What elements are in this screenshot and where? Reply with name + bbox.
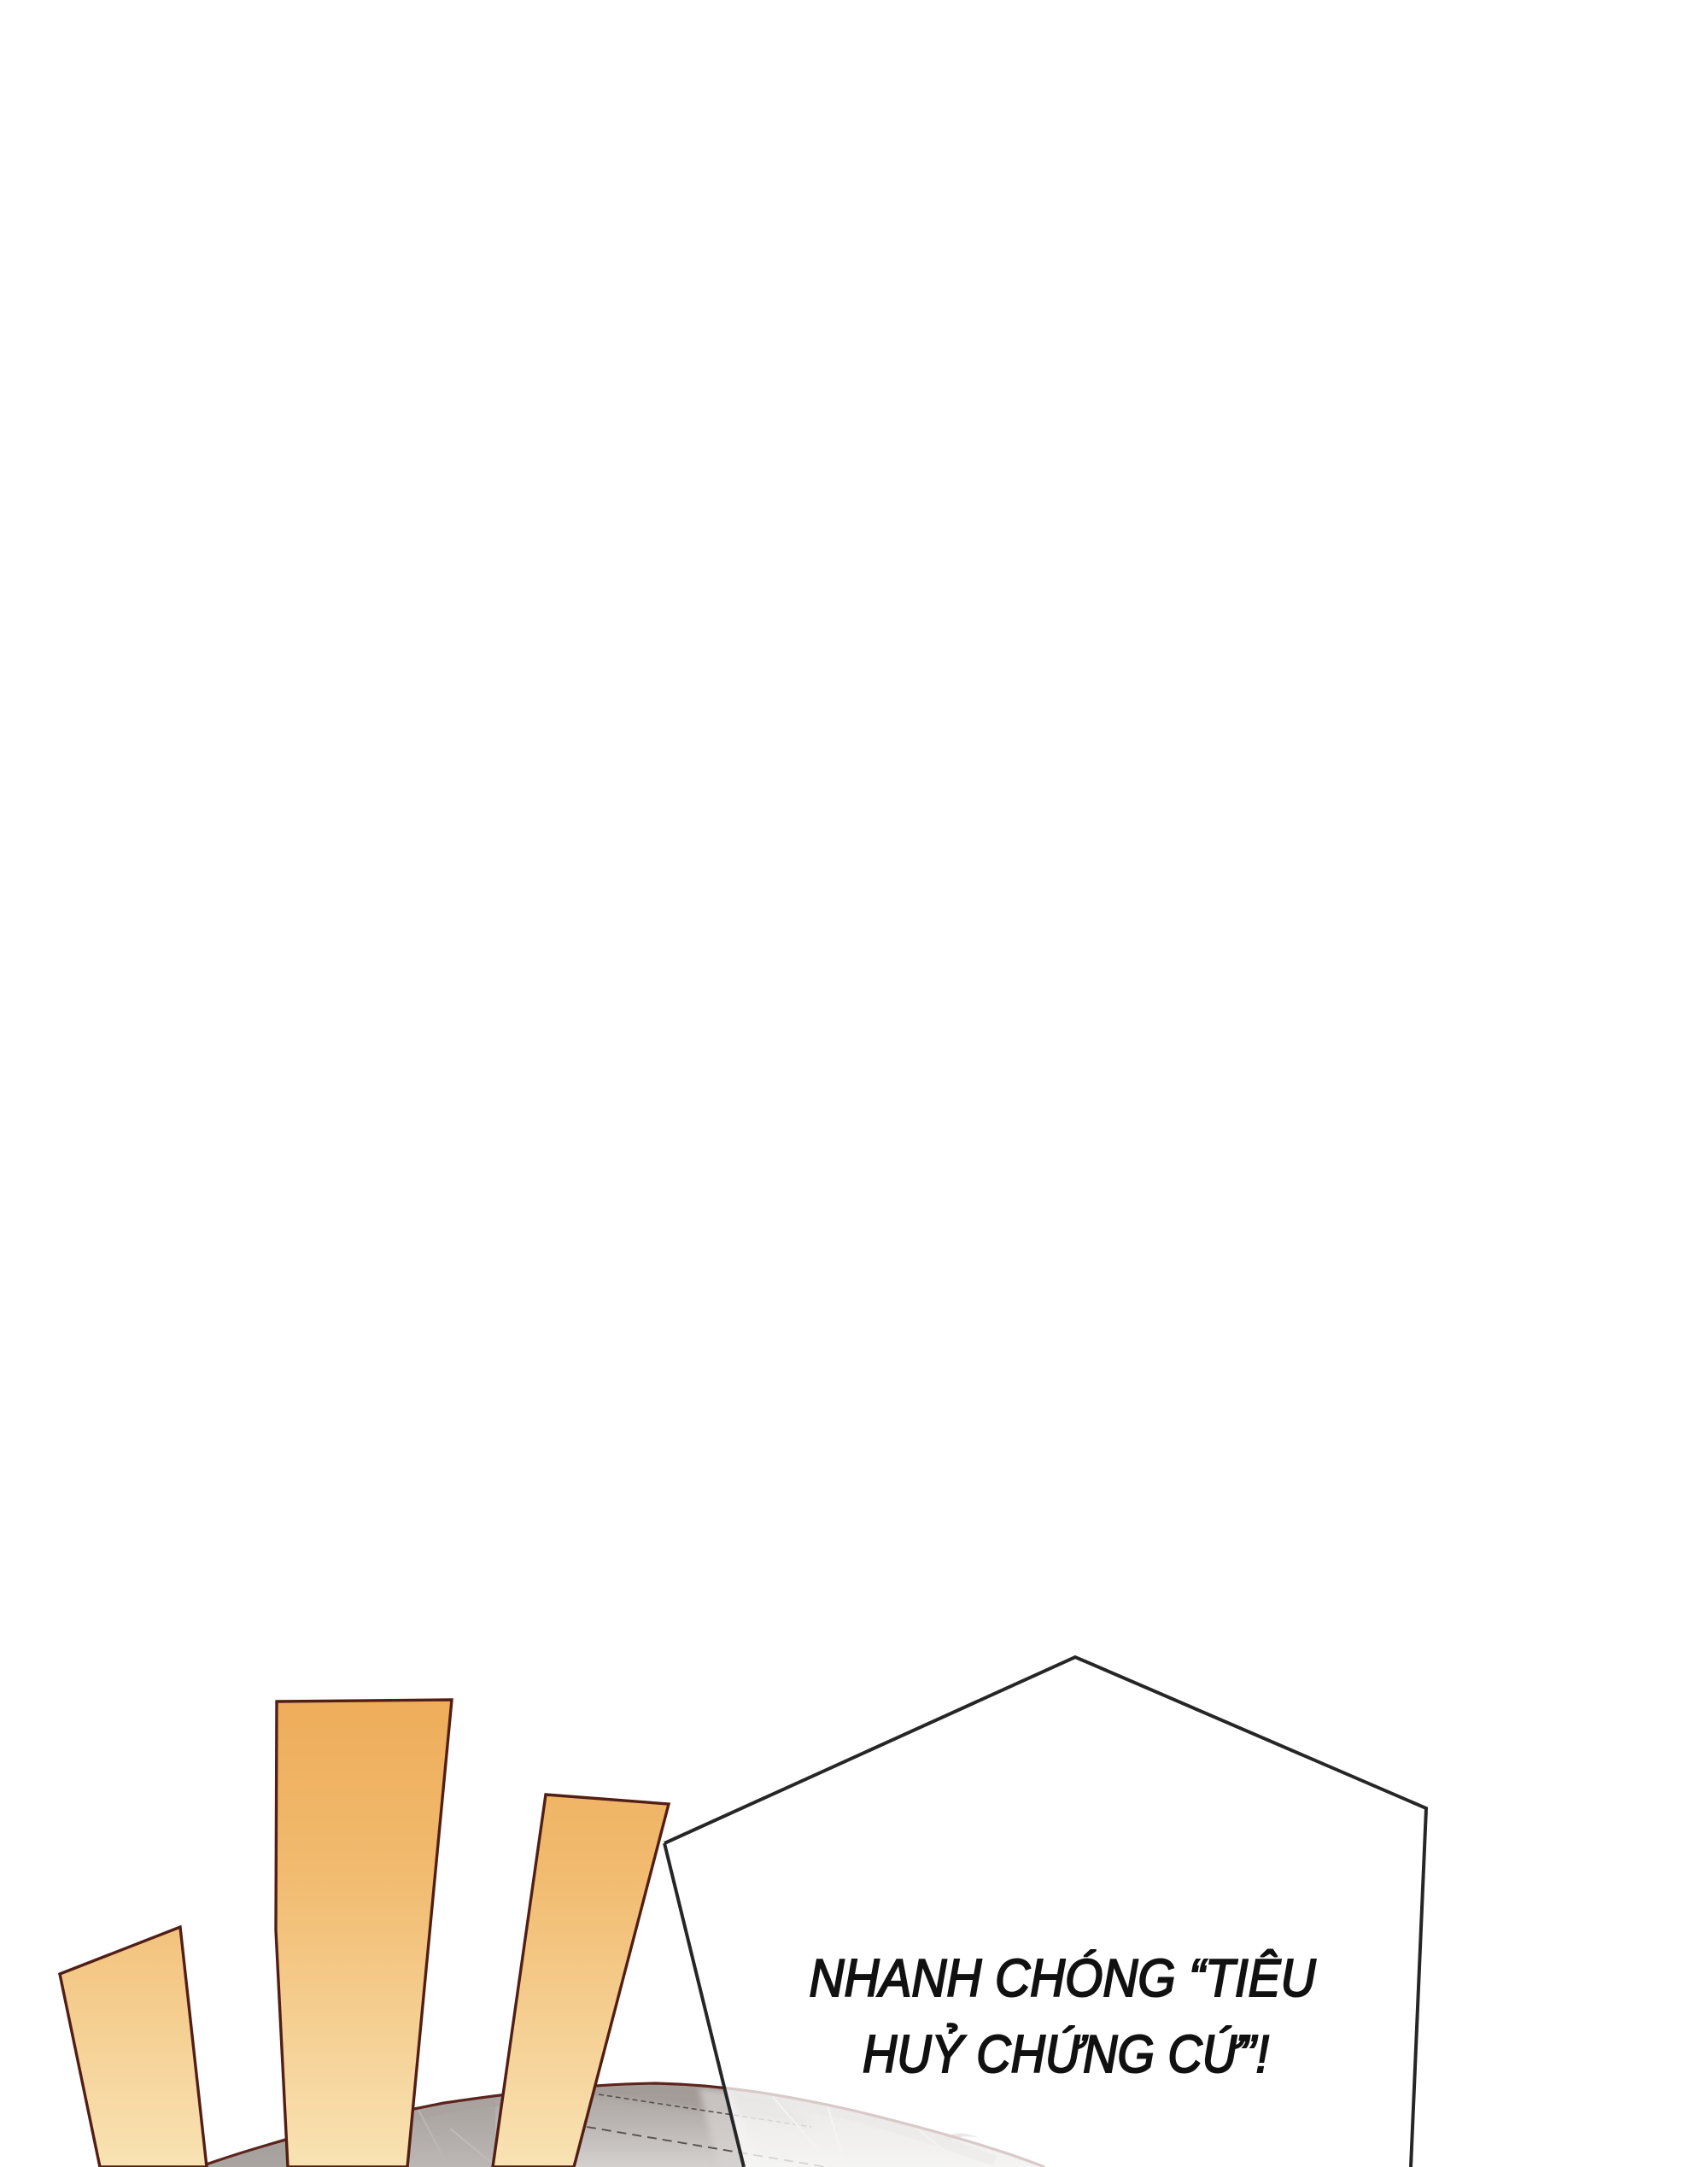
svg-text:HUỶ CHỨNG CỨ”!: HUỶ CHỨNG CỨ”! xyxy=(863,2024,1269,2084)
svg-text:NHANH CHÓNG “TIÊU: NHANH CHÓNG “TIÊU xyxy=(810,1949,1317,2008)
